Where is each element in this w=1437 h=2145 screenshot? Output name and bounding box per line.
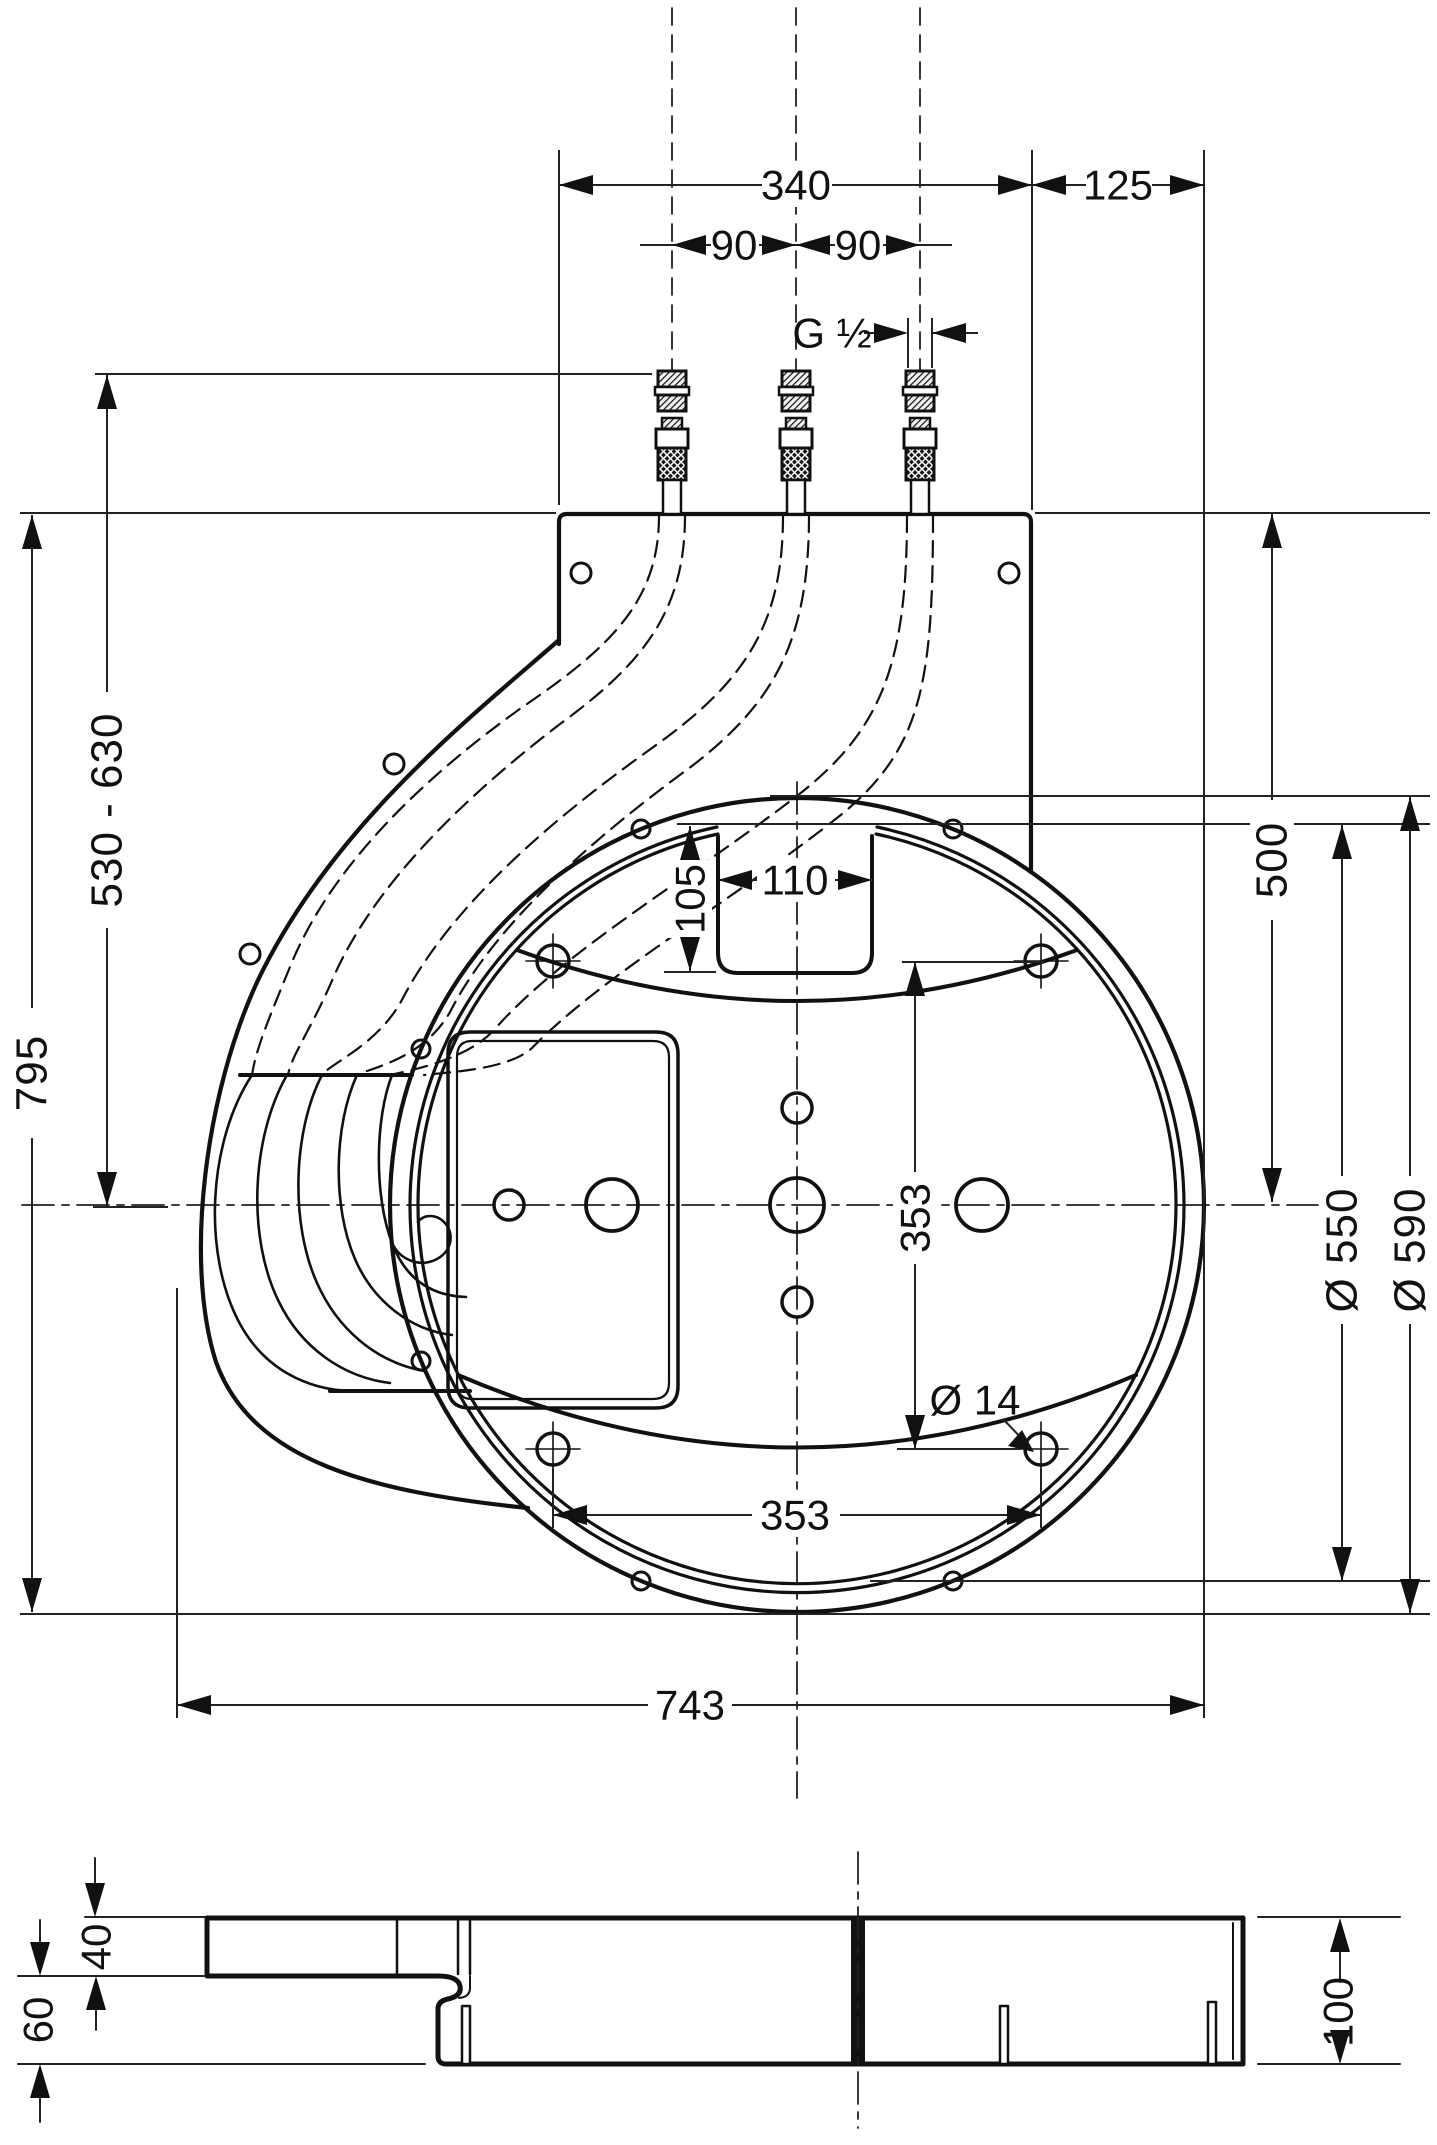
- dim-label-bolt-h: 353: [760, 1492, 830, 1539]
- background: [0, 0, 1437, 2145]
- dim-label-total-height: 795: [8, 1035, 57, 1111]
- dim-label-total-width: 743: [655, 1682, 725, 1729]
- drawing-page: 340 125 90 90 G ½ 530 - 630: [0, 0, 1437, 2145]
- dim-label-thread: G ½: [792, 310, 871, 357]
- section-rib: [462, 2006, 470, 2064]
- dim-label-cutout-depth: 105: [667, 864, 714, 934]
- dim-label-plate-thickness: 40: [73, 1924, 120, 1971]
- section-rib: [1208, 2002, 1216, 2064]
- dim-label-bolt-v: 353: [892, 1183, 939, 1253]
- dim-label-dia-inner: Ø 550: [1318, 1188, 1367, 1313]
- dim-label-90-right: 90: [835, 222, 882, 269]
- dim-label-125: 125: [1083, 162, 1153, 209]
- dim-label-bolt-dia: Ø 14: [929, 1377, 1020, 1424]
- dim-label-mount-height: 530 - 630: [83, 713, 132, 908]
- dim-label-340: 340: [761, 162, 831, 209]
- dim-label-90-left: 90: [711, 222, 758, 269]
- dim-label-center-height: 500: [1248, 822, 1297, 898]
- technical-drawing: 340 125 90 90 G ½ 530 - 630: [0, 0, 1437, 2145]
- dim-label-dia-outer: Ø 590: [1386, 1188, 1435, 1313]
- dim-label-total-depth: 100: [1315, 1977, 1362, 2047]
- section-rib: [1000, 2006, 1008, 2064]
- dim-label-recess-depth: 60: [15, 1997, 62, 2044]
- dim-label-cutout-width: 110: [762, 857, 829, 904]
